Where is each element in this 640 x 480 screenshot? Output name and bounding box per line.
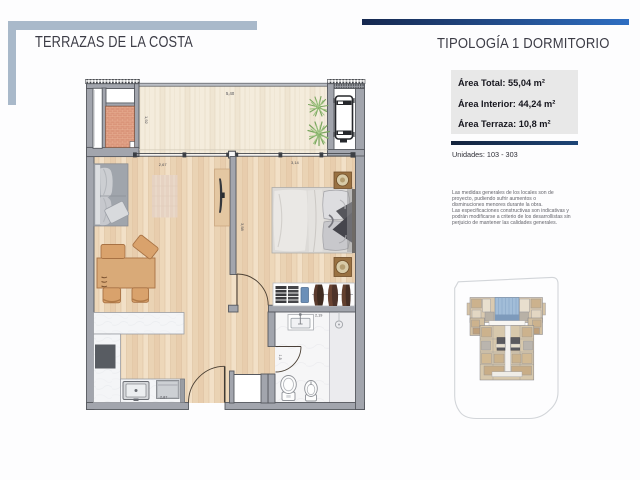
- svg-text:1,5: 1,5: [278, 355, 282, 360]
- svg-text:5,40: 5,40: [226, 91, 235, 96]
- svg-text:2,87: 2,87: [160, 396, 167, 400]
- svg-text:2,67: 2,67: [159, 162, 168, 167]
- svg-text:1,92: 1,92: [144, 116, 149, 125]
- svg-text:2,19: 2,19: [315, 314, 322, 318]
- svg-text:3,14: 3,14: [291, 160, 300, 165]
- svg-text:3,58: 3,58: [240, 223, 245, 232]
